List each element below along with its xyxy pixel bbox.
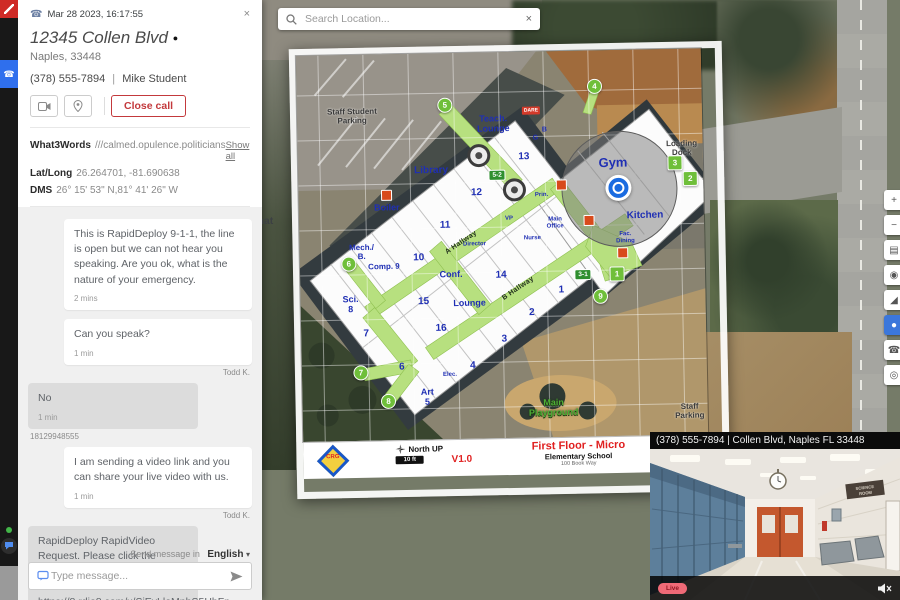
caller-name: Mike Student [122, 73, 186, 85]
map-control-button[interactable]: ◉ [884, 265, 900, 285]
plan-marker[interactable]: 3-1 [574, 269, 592, 280]
video-call-button[interactable] [30, 95, 58, 117]
plan-marker[interactable]: 9 [593, 289, 608, 304]
plan-marker[interactable]: DARE [522, 106, 540, 114]
plan-label: Staff Student Parking [315, 107, 389, 126]
message-sender: Todd K. [223, 511, 250, 520]
plan-label: Comp. 9 [367, 263, 401, 272]
map-control-button[interactable]: − [884, 215, 900, 235]
send-language-row: Send message in English ▾ [130, 549, 250, 560]
caller-city: Naples, 33448 [30, 51, 250, 63]
message-sender: Todd K. [223, 368, 250, 377]
map-control-button[interactable]: ◢ [884, 290, 900, 310]
plan-label: Art 5 [417, 388, 437, 408]
divider [104, 97, 105, 115]
floorplan-title-strip: CRG North UP 10 ft V1.0 First Floor - Mi… [303, 434, 709, 479]
plan-label: Main Playground [522, 398, 584, 419]
caller-phone: (378) 555-7894 [30, 73, 105, 85]
plan-label: 16 [435, 323, 446, 334]
plan-label: Library [414, 165, 448, 177]
close-panel-icon[interactable]: × [244, 8, 250, 20]
message-sender: 18129948555 [30, 432, 79, 441]
close-call-button[interactable]: Close call [111, 95, 186, 117]
plan-marker[interactable]: 2 [683, 171, 698, 186]
plan-label: 11 [440, 220, 451, 231]
camera-icon [38, 102, 51, 111]
plan-label: Prin. [535, 192, 548, 199]
compass-icon [395, 444, 405, 454]
dms-value: 26° 15' 53" N,81° 41' 26" W [56, 185, 178, 196]
latlong-label: Lat/Long [30, 168, 72, 179]
plan-label: 10 [413, 252, 424, 263]
chat-bubble-icon[interactable] [1, 538, 17, 554]
show-all-link[interactable]: Show all [226, 140, 250, 162]
search-clear-icon[interactable]: × [526, 13, 532, 25]
chat-glyph [1, 538, 17, 554]
plan-marker[interactable]: 7 [353, 365, 368, 380]
grass-and-trees [710, 200, 838, 335]
caller-row: (378) 555-7894 | Mike Student [30, 73, 250, 85]
message-input-row [28, 562, 252, 590]
live-badge: Live [658, 583, 687, 594]
live-video-overlay[interactable]: (378) 555-7894 | Collen Blvd, Naples FL … [650, 432, 900, 600]
chat-message-outgoing: Can you speak? 1 min [64, 319, 252, 365]
plan-label: 14 [495, 270, 506, 281]
active-call-nav-item[interactable]: ☎ [0, 60, 18, 88]
rapiddeploy-app: ☎ ☎ Mar 28 2023, 16:17:55 × 12345 Collen… [0, 0, 900, 600]
video-controls-bar: Live [650, 576, 900, 600]
plan-marker[interactable] [503, 178, 526, 201]
plan-label: VP [505, 216, 513, 223]
plan-label: 15 [418, 296, 429, 307]
plan-version: V1.0 [452, 454, 473, 465]
caller-address: 12345 Collen Blvd ● [30, 28, 250, 48]
call-panel: ☎ Mar 28 2023, 16:17:55 × 12345 Collen B… [18, 0, 262, 600]
plan-label: Main Office [542, 216, 568, 230]
message-time: 1 min [38, 412, 188, 424]
plan-label: Gym [598, 156, 627, 171]
plan-marker[interactable] [556, 179, 567, 190]
dms-label: DMS [30, 185, 52, 196]
compass-group: North UP 10 ft [395, 443, 443, 464]
plan-marker[interactable] [617, 247, 628, 258]
plan-label: 13 [518, 151, 529, 162]
map-pin-icon [73, 100, 83, 112]
floorplan-map: Staff Student ParkingTeach. LoungeLibrar… [296, 48, 708, 442]
search-input[interactable] [303, 12, 526, 26]
plan-marker[interactable]: 5 [437, 98, 452, 113]
plan-label: 6 [399, 362, 405, 373]
plan-label: Kitchen [627, 210, 664, 222]
plan-label: G [533, 135, 539, 143]
what3words-label: What3Words [30, 140, 91, 151]
send-icon[interactable] [230, 571, 243, 582]
crg-logo: CRG [317, 445, 350, 478]
map-control-button[interactable]: ◎ [884, 365, 900, 385]
map-control-button[interactable]: ☎ [884, 340, 900, 360]
sms-icon [37, 570, 49, 582]
video-caption: (378) 555-7894 | Collen Blvd, Naples FL … [650, 432, 900, 449]
chat-scroll-area[interactable]: This is RapidDeploy 9-1-1, the line is o… [28, 219, 252, 600]
plan-marker[interactable]: 6 [341, 256, 356, 271]
plan-label: Fac. Dining [612, 231, 638, 245]
video-frame[interactable]: SCIENCE ROOM [650, 449, 900, 600]
what3words-value: ///calmed.opulence.politicians [95, 140, 226, 151]
plan-marker[interactable]: 3 [667, 155, 682, 170]
search-icon [286, 14, 297, 25]
language-select[interactable]: English [207, 549, 243, 560]
sms-chat-panel: This is RapidDeploy 9-1-1, the line is o… [18, 207, 262, 600]
plan-label: Elec. [443, 372, 457, 379]
map-control-button[interactable]: + [884, 190, 900, 210]
plan-label: Staff Parking [670, 402, 709, 420]
map-control-button[interactable]: ▤ [884, 240, 900, 260]
plan-marker[interactable] [467, 144, 490, 167]
map-search-bar: × [278, 8, 540, 30]
plan-label: Conf. [439, 270, 462, 280]
plan-marker[interactable] [381, 190, 392, 201]
phone-icon: ☎ [30, 9, 42, 20]
scale-badge: 10 ft [396, 456, 424, 465]
plan-marker[interactable]: 4 [587, 79, 602, 94]
plan-label: 12 [471, 187, 482, 198]
message-time: 2 mins [74, 293, 242, 305]
app-logo[interactable] [0, 0, 18, 18]
caller-location-dot [614, 184, 622, 192]
plan-label: Lounge [453, 299, 486, 310]
latlong-value: 26.264701, -81.690638 [76, 168, 179, 179]
chevron-down-icon[interactable]: ▾ [246, 550, 250, 559]
plan-label: Nurse [524, 235, 541, 242]
plan-label: 1 [559, 284, 565, 295]
plan-label: Teach. Lounge [467, 114, 519, 135]
call-timestamp: Mar 28 2023, 16:17:55 [47, 9, 143, 20]
crosswalk [822, 118, 838, 208]
user-avatar[interactable] [0, 566, 18, 600]
plan-label: 7 [363, 328, 369, 339]
north-label: North UP [408, 444, 443, 454]
locate-button[interactable] [64, 95, 92, 117]
status-dot [6, 527, 12, 533]
message-input[interactable] [49, 569, 230, 583]
chat-message-incoming: No 1 min [28, 383, 198, 429]
info-dot-icon: ● [173, 33, 178, 43]
plan-label: B [542, 126, 547, 134]
plan-marker[interactable]: 8 [381, 394, 396, 409]
chat-message-outgoing: I am sending a video link and you can sh… [64, 447, 252, 508]
plan-label: 2 [529, 307, 535, 318]
message-time: 1 min [74, 348, 242, 360]
floorplan-overlay[interactable]: Staff Student ParkingTeach. LoungeLibrar… [289, 41, 731, 499]
map-control-button[interactable]: ● [884, 315, 900, 335]
mute-speaker-icon[interactable] [878, 583, 892, 594]
plan-marker[interactable]: 5-2 [488, 170, 506, 181]
plan-label: Boiler [374, 203, 400, 213]
plan-label: Sci. 8 [339, 295, 361, 315]
plan-label: 3 [501, 334, 507, 345]
plan-marker[interactable]: 1 [609, 266, 624, 281]
app-rail: ☎ [0, 0, 18, 600]
plan-label: 4 [470, 360, 476, 371]
plan-marker[interactable] [583, 215, 594, 226]
chat-message-outgoing: This is RapidDeploy 9-1-1, the line is o… [64, 219, 252, 310]
message-time: 1 min [74, 491, 242, 503]
